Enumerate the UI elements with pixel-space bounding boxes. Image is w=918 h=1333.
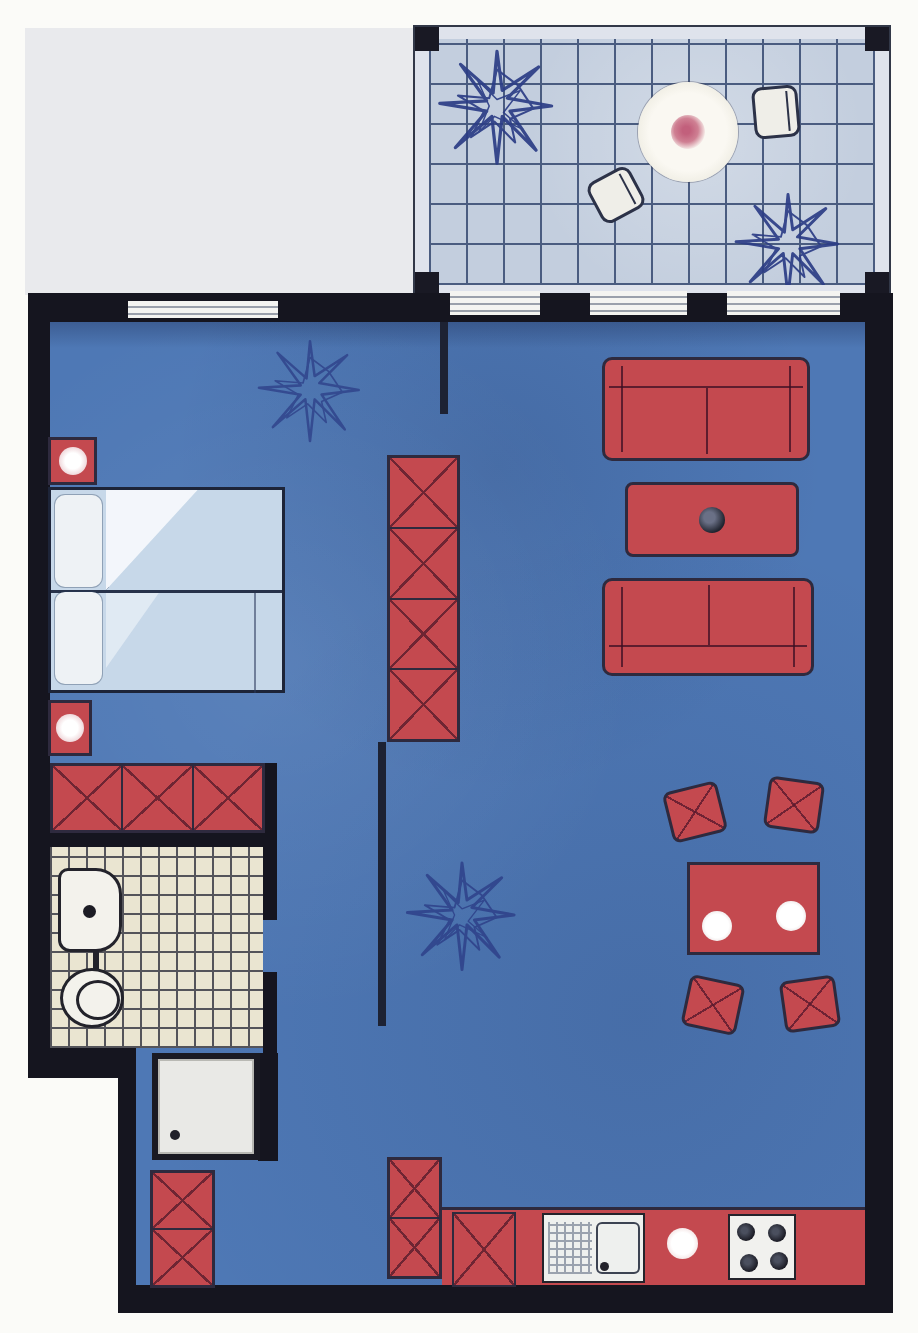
- toilet: [60, 968, 124, 1028]
- lamp-icon: [56, 714, 84, 742]
- wall-south: [135, 1285, 893, 1313]
- bathroom-wall: [263, 972, 277, 1053]
- wall-room-divider: [378, 742, 386, 1026]
- cabinet-section: [153, 1230, 212, 1285]
- dining-table: [687, 862, 820, 955]
- cabinet-section: [390, 1219, 439, 1276]
- burner-icon: [770, 1252, 788, 1270]
- sofa: [602, 578, 814, 676]
- balcony-chair: [751, 84, 801, 140]
- wall-west: [28, 293, 50, 1075]
- drain-icon: [170, 1130, 180, 1140]
- stove: [728, 1214, 796, 1280]
- sofa-armrest-line: [621, 587, 623, 667]
- toilet-bowl: [76, 980, 120, 1020]
- kitchen-counter: [442, 1207, 865, 1285]
- burner-icon: [737, 1223, 755, 1241]
- coffee-table: [625, 482, 799, 557]
- kitchen-sink: [542, 1213, 645, 1283]
- outside-area-top-left: [25, 28, 415, 295]
- sofa-armrest-line: [793, 587, 795, 667]
- plate-icon: [702, 911, 732, 941]
- shower-wall: [258, 1053, 278, 1161]
- balcony-door-panel: [450, 291, 540, 315]
- wardrobe-section: [390, 458, 457, 529]
- outside-area-bottom-left: [28, 1078, 118, 1313]
- balcony-door-panel: [727, 291, 840, 315]
- nightstand: [48, 437, 97, 485]
- sofa-cushion-divider: [706, 388, 708, 454]
- pillow: [55, 592, 102, 684]
- plate-icon: [776, 901, 806, 931]
- floor-plan: [0, 0, 918, 1333]
- sofa-backrest-line: [609, 645, 807, 647]
- faucet-icon: [600, 1262, 609, 1271]
- dining-chair: [680, 974, 746, 1037]
- blanket-seam: [254, 593, 256, 693]
- dresser-drawer: [53, 766, 123, 830]
- blanket-fold-line: [106, 490, 282, 590]
- plant-icon: [727, 185, 849, 285]
- double-bed: [48, 487, 285, 693]
- plant-icon: [252, 332, 368, 448]
- ashtray-icon: [699, 507, 725, 533]
- cabinet-section: [153, 1173, 212, 1230]
- shower-cubicle: [152, 1053, 260, 1160]
- wall-notch-horizontal: [28, 1048, 136, 1078]
- drainboard-icon: [548, 1222, 592, 1274]
- sofa-armrest-line: [789, 366, 791, 452]
- balcony-corner-post: [865, 27, 889, 51]
- balcony-chair: [584, 163, 648, 226]
- balcony-door-panel: [590, 291, 687, 315]
- wardrobe-section: [390, 670, 457, 739]
- wardrobe-section: [390, 529, 457, 600]
- wardrobe-section: [390, 600, 457, 671]
- flower-centrepiece-icon: [671, 115, 705, 149]
- kitchen-cabinet: [387, 1157, 442, 1279]
- burner-icon: [768, 1224, 786, 1242]
- toilet-pipe: [93, 950, 99, 970]
- wall-notch-vertical: [118, 1060, 136, 1313]
- dining-chair: [763, 775, 826, 834]
- pillow: [55, 495, 102, 587]
- wall-east: [865, 293, 893, 1313]
- cabinet-section: [452, 1212, 516, 1287]
- plant-icon: [400, 853, 524, 977]
- counter-basin-icon: [667, 1228, 698, 1259]
- nightstand: [48, 700, 92, 756]
- balcony-tiled-floor: [429, 39, 875, 285]
- lamp-icon: [59, 447, 87, 475]
- wardrobe: [387, 455, 460, 742]
- dresser-drawer: [194, 766, 262, 830]
- kitchen-cabinet: [150, 1170, 215, 1288]
- dresser: [50, 763, 265, 833]
- balcony: [413, 25, 891, 298]
- balcony-round-table: [638, 82, 738, 182]
- dresser-drawer: [123, 766, 193, 830]
- cabinet-section: [390, 1160, 439, 1219]
- sofa: [602, 357, 810, 461]
- bathroom-wall: [50, 833, 277, 847]
- sofa-armrest-line: [621, 366, 623, 452]
- bedroom-window: [128, 301, 278, 318]
- dining-chair: [779, 974, 842, 1033]
- burner-icon: [740, 1254, 758, 1272]
- bathroom-sink: [58, 868, 122, 952]
- faucet-icon: [83, 905, 96, 918]
- wall-partition-stub: [440, 320, 448, 414]
- sofa-cushion-divider: [708, 585, 710, 645]
- plant-icon: [431, 41, 563, 171]
